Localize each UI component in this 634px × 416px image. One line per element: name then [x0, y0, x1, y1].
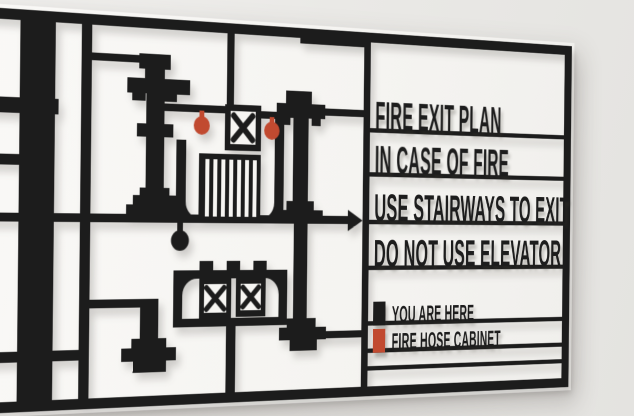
message-line-4-text: DO NOT USE ELEVATOR [374, 238, 562, 271]
message-line-3: USE STAIRWAYS TO EXIT [374, 186, 634, 227]
message-line-1-text: FIRE EXIT PLAN [375, 100, 502, 138]
fire-exit-plan-sign: FIRE EXIT PLAN IN CASE OF FIRE USE STAIR… [0, 0, 575, 416]
message-line-2: IN CASE OF FIRE [375, 139, 624, 183]
elevator-icon-lower-2 [236, 278, 266, 317]
wall-photo: FIRE EXIT PLAN IN CASE OF FIRE USE STAIR… [0, 0, 634, 416]
message-line-4: DO NOT USE ELEVATOR [374, 232, 634, 271]
you-are-here-dot-icon [171, 223, 189, 251]
stairs-icon [198, 153, 260, 217]
elevator-icon-upper [225, 104, 262, 151]
exit-arrow-icon [348, 210, 363, 231]
message-line-3-text: USE STAIRWAYS TO EXIT [374, 192, 569, 227]
elevator-icon-lower-1 [199, 278, 231, 319]
legend-you-are-here: YOU ARE HERE [373, 297, 536, 326]
fire-hose-pin-icon-1 [194, 110, 210, 135]
message-line-1: FIRE EXIT PLAN [375, 95, 610, 142]
legend-you-are-here-label: YOU ARE HERE [392, 302, 474, 325]
message-line-2-text: IN CASE OF FIRE [375, 144, 510, 180]
plan-walls [0, 11, 371, 410]
you-are-here-pin-icon [373, 302, 386, 326]
legend-fire-hose-cabinet-label: FIRE HOSE CABINET [392, 328, 501, 352]
fire-hose-pin-icon [373, 329, 386, 353]
